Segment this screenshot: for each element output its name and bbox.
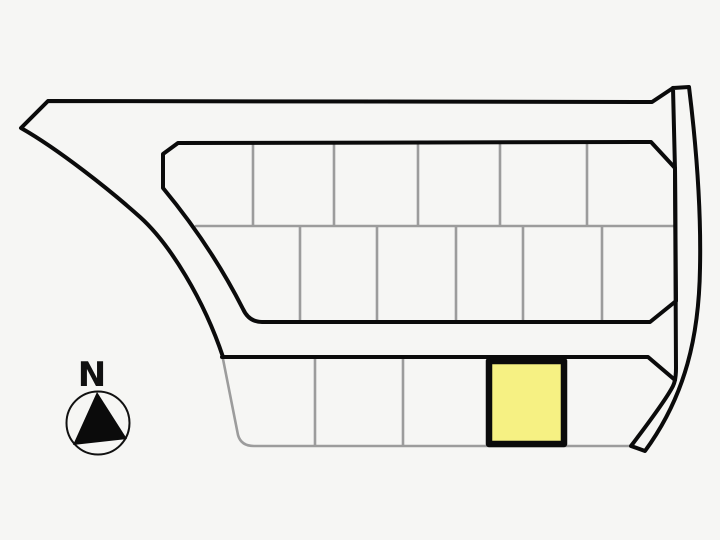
plot-map: N <box>0 0 720 540</box>
plot-map-page: N <box>0 0 720 540</box>
bottom-row-west-south-edge <box>223 359 629 446</box>
outer-west-boundary <box>21 88 673 357</box>
highlighted-lot <box>489 361 564 444</box>
north-label: N <box>78 355 106 395</box>
boundary-lines <box>21 87 700 451</box>
lot-dividers <box>196 144 675 446</box>
bottom-row-north-edge <box>222 357 675 380</box>
north-compass: N <box>67 355 130 455</box>
inner-block-outline <box>163 142 676 322</box>
